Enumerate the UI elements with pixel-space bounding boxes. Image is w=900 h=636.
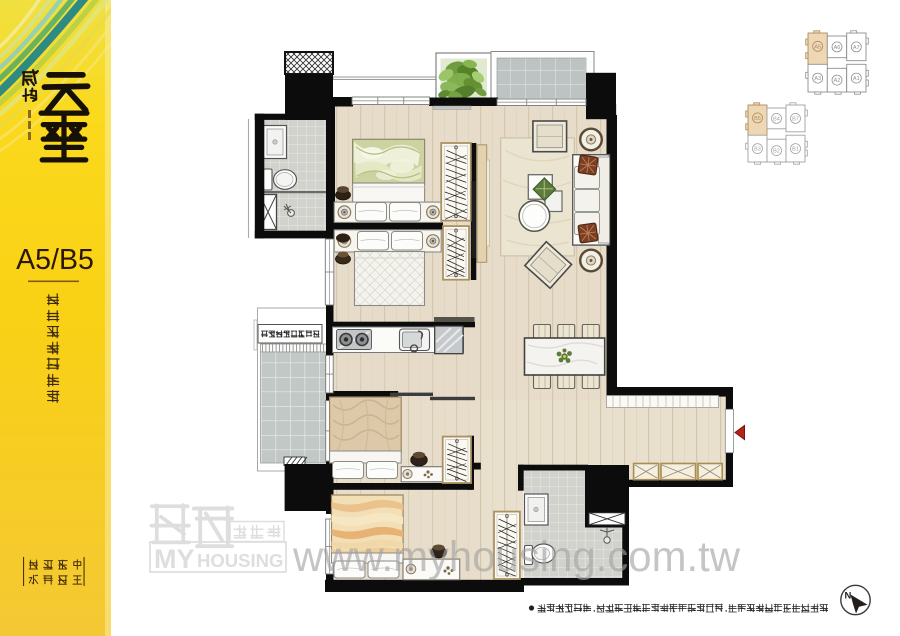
svg-text:B1: B1 — [792, 147, 799, 153]
svg-text:A3: A3 — [814, 76, 821, 82]
svg-text:B7: B7 — [792, 117, 799, 123]
svg-text:A1: A1 — [853, 76, 860, 82]
svg-text:A5: A5 — [814, 44, 821, 50]
svg-text:HOUSING: HOUSING — [197, 550, 283, 571]
svg-text:A2: A2 — [834, 78, 841, 84]
svg-text:www.myhousing.com.tw: www.myhousing.com.tw — [292, 533, 741, 581]
svg-text:A5/B5: A5/B5 — [16, 244, 94, 276]
svg-text:N: N — [845, 591, 852, 602]
svg-text:MY: MY — [154, 544, 195, 574]
svg-text:A6: A6 — [834, 45, 841, 51]
svg-text:B5: B5 — [754, 116, 761, 122]
svg-text:B2: B2 — [773, 149, 780, 155]
svg-text:B3: B3 — [754, 147, 761, 153]
svg-text:B4: B4 — [773, 117, 780, 123]
svg-text:A7: A7 — [853, 45, 860, 51]
